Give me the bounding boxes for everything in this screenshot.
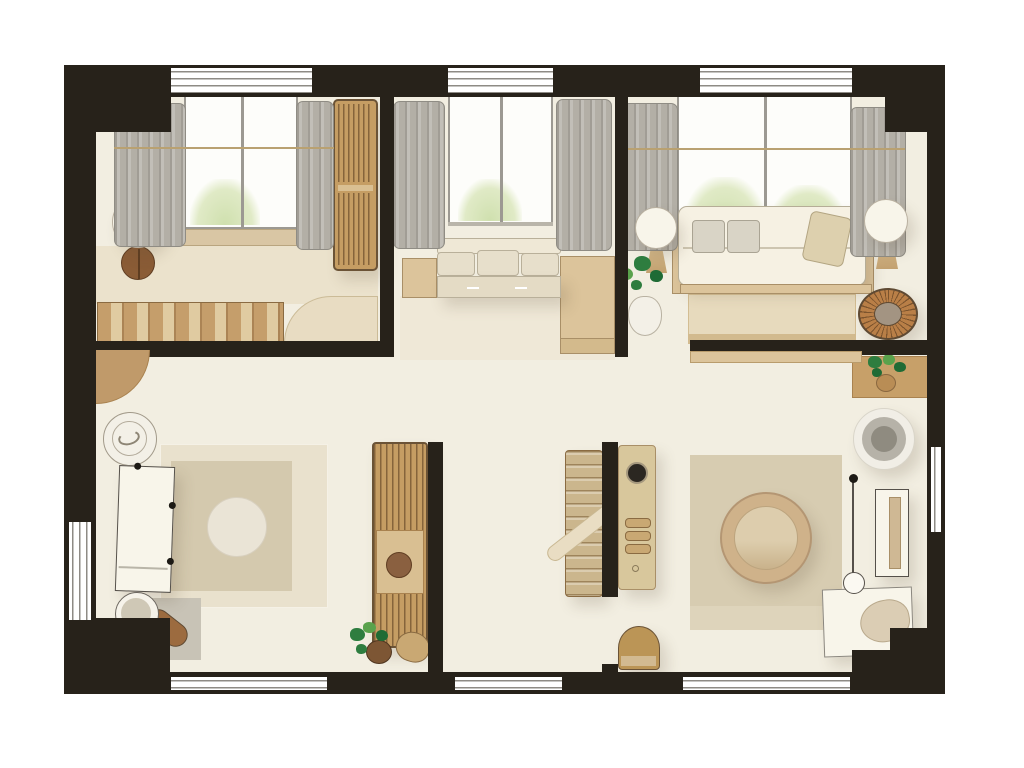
plant-vase [628, 296, 662, 336]
plant-leaf [634, 256, 651, 271]
nook-cabinet-right-base [560, 338, 615, 354]
ledge-plant-pot [876, 374, 896, 392]
rattan-chair-seat [874, 302, 902, 326]
floor-lamp-top [849, 474, 858, 483]
pouf [853, 408, 915, 470]
wall-clock [103, 412, 157, 466]
living-curtain-rod [625, 148, 905, 150]
plant-leaf [376, 630, 388, 641]
plant-leaf [356, 644, 367, 654]
window-greenery [190, 179, 260, 225]
sofa-cushion [692, 220, 725, 253]
threshold-board [690, 351, 862, 363]
floor-lamp-base [843, 572, 865, 594]
partition-aisle-left [428, 442, 443, 692]
bedroom-window-sill [182, 229, 300, 246]
fan-speaker [626, 462, 648, 484]
study-rug-table [207, 497, 267, 557]
window-bottom-2 [455, 673, 562, 694]
window-mullion [241, 97, 244, 227]
slatted-cabinet [372, 442, 428, 648]
nook-cabinet-left [402, 258, 437, 298]
lounge-rug-band [690, 606, 842, 630]
plant-pot [366, 640, 392, 664]
drawer-handle [467, 287, 479, 289]
bedroom-curtain-rod [114, 147, 334, 149]
window-greenery [458, 179, 522, 221]
utility-cabinet [618, 445, 656, 590]
plant-leaf [868, 356, 882, 368]
bench-cushion [477, 250, 519, 276]
plant-leaf [650, 270, 663, 282]
bench-cushion [521, 253, 559, 276]
nook-cabinet-right [560, 256, 615, 340]
window-bottom-1 [171, 673, 327, 694]
towel [625, 518, 651, 528]
study-desk [115, 465, 175, 593]
sofa-front-trim [680, 284, 872, 294]
globe-lamp-left [635, 207, 677, 249]
bench-drawers [437, 276, 561, 298]
plant-leaf [631, 280, 642, 290]
window-top-1 [171, 64, 312, 97]
plant-leaf [894, 362, 906, 372]
bedroom-curtain-right [296, 101, 334, 250]
nook-window-glass [448, 95, 553, 225]
bedroom-window-glass [184, 95, 298, 229]
lounge-side-table [875, 489, 909, 577]
window-top-2 [448, 64, 553, 97]
partition-bedroom-right [380, 95, 394, 357]
corner-top-right [885, 65, 945, 132]
desk-knob [134, 463, 141, 470]
corner-top-left [64, 65, 171, 132]
partition-living-left [615, 95, 628, 357]
bedside-stool [121, 246, 155, 280]
nook-sill-line [448, 222, 553, 226]
floor-lamp-stem [852, 481, 854, 579]
towel [625, 544, 651, 554]
towel [625, 531, 651, 541]
ring-chair [720, 492, 812, 584]
globe-lamp-right [864, 199, 908, 243]
corner-bottom-left [64, 618, 170, 694]
partition-aisle-right-stub [602, 664, 618, 694]
wall-right [927, 65, 945, 694]
drawer-handle [515, 287, 527, 289]
small-knob [632, 565, 639, 572]
window-mullion [500, 97, 503, 223]
sofa-cushion [727, 220, 760, 253]
side-table-tray [889, 497, 901, 569]
striped-bed-runner [97, 302, 284, 343]
window-right [927, 447, 945, 532]
nook-curtain-right [556, 99, 612, 251]
bench-cushion [437, 252, 475, 276]
plant-leaf [883, 354, 895, 365]
window-bottom-3 [683, 673, 850, 694]
corner-bottom-right [852, 650, 945, 694]
partition-aisle-right [602, 442, 618, 597]
floor-plan [0, 0, 1024, 768]
half-stool [618, 626, 660, 670]
cabinet-knob [386, 552, 412, 578]
window-top-3 [700, 64, 852, 97]
plant-leaf [363, 622, 376, 633]
nook-curtain-left [393, 101, 445, 249]
slatted-wardrobe [333, 99, 378, 271]
window-left [65, 522, 95, 620]
